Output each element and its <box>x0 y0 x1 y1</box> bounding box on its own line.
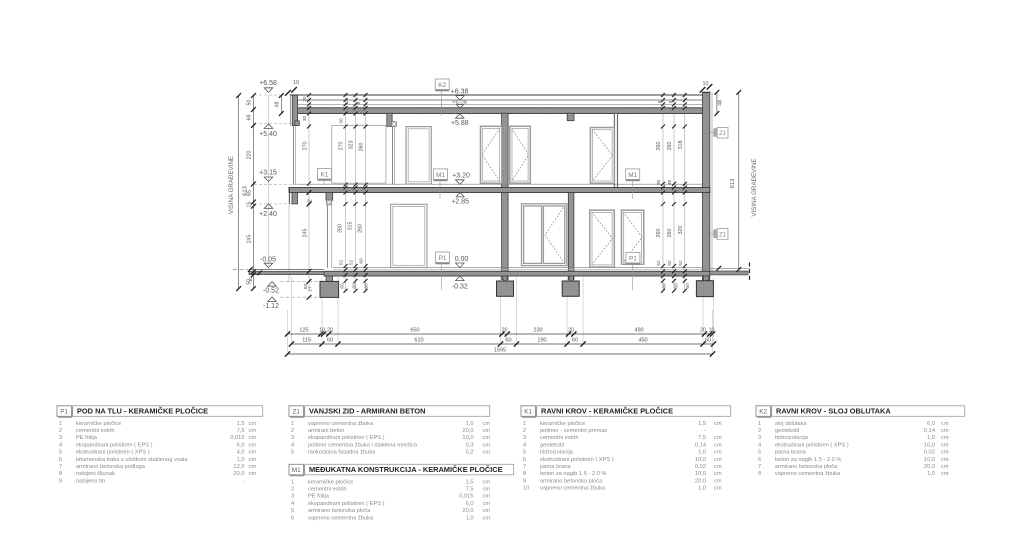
svg-text:323: 323 <box>349 141 355 150</box>
svg-text:-: - <box>243 478 245 484</box>
svg-text:5: 5 <box>758 450 761 456</box>
svg-text:1: 1 <box>523 421 526 427</box>
svg-text:cementni estrih: cementni estrih <box>308 487 347 493</box>
svg-text:ekspandirani polistiren ( EPS: ekspandirani polistiren ( EPS ) <box>308 501 385 507</box>
svg-text:RAVNI KROV - KERAMIČKE PLOČICE: RAVNI KROV - KERAMIČKE PLOČICE <box>541 407 673 416</box>
svg-text:Z1: Z1 <box>719 232 727 238</box>
svg-text:7: 7 <box>758 464 761 470</box>
svg-text:cm: cm <box>714 464 722 470</box>
svg-text:35: 35 <box>656 180 662 186</box>
svg-text:VISINA GRAĐEVINE: VISINA GRAĐEVINE <box>751 158 758 216</box>
svg-text:1,0: 1,0 <box>698 450 706 456</box>
svg-text:VANJSKI ZID - ARMIRANI BETON: VANJSKI ZID - ARMIRANI BETON <box>309 407 425 416</box>
svg-text:52: 52 <box>667 260 673 266</box>
svg-text:-: - <box>704 428 706 434</box>
svg-text:7: 7 <box>523 464 526 470</box>
svg-text:260: 260 <box>338 224 344 233</box>
svg-text:keramičke pločice: keramičke pločice <box>76 421 121 427</box>
svg-text:cm: cm <box>941 435 949 441</box>
svg-text:1: 1 <box>291 421 294 427</box>
svg-text:1: 1 <box>59 421 62 427</box>
svg-text:65: 65 <box>247 190 253 196</box>
svg-text:cm: cm <box>249 442 257 448</box>
svg-text:Z1: Z1 <box>292 409 300 416</box>
svg-text:52: 52 <box>656 260 662 266</box>
svg-text:1,0: 1,0 <box>466 515 474 521</box>
svg-text:2: 2 <box>523 428 526 434</box>
svg-text:cm: cm <box>249 428 257 434</box>
svg-text:armirano betonska ploča: armirano betonska ploča <box>540 478 603 484</box>
svg-text:+6.58: +6.58 <box>259 80 277 87</box>
svg-text:0,02: 0,02 <box>924 450 935 456</box>
svg-text:hidroizolacija: hidroizolacija <box>775 435 809 441</box>
svg-text:geotekstil: geotekstil <box>775 428 799 434</box>
svg-text:10: 10 <box>709 327 715 333</box>
svg-text:4,0: 4,0 <box>237 450 245 456</box>
svg-text:Z1: Z1 <box>719 131 727 137</box>
svg-text:260: 260 <box>667 142 673 151</box>
svg-text:5: 5 <box>59 450 62 456</box>
svg-text:650: 650 <box>410 327 419 333</box>
svg-text:K2: K2 <box>438 82 446 89</box>
svg-text:cm: cm <box>941 442 949 448</box>
svg-text:cm: cm <box>249 421 257 427</box>
svg-text:5: 5 <box>291 508 294 514</box>
svg-text:60: 60 <box>572 337 578 343</box>
svg-text:keramičke pločice: keramičke pločice <box>308 479 353 485</box>
svg-text:cm: cm <box>714 450 722 456</box>
svg-text:0,02: 0,02 <box>695 464 706 470</box>
svg-text:0,14: 0,14 <box>924 428 935 434</box>
svg-text:60: 60 <box>705 337 711 343</box>
svg-text:7,5: 7,5 <box>698 435 706 441</box>
svg-text:VISINA GRAĐEVINE: VISINA GRAĐEVINE <box>228 156 235 214</box>
svg-text:15: 15 <box>247 202 253 208</box>
svg-text:6: 6 <box>523 457 526 463</box>
svg-text:60: 60 <box>359 258 365 264</box>
svg-text:4: 4 <box>291 442 294 448</box>
svg-text:cm: cm <box>714 442 722 448</box>
svg-text:6: 6 <box>758 457 761 463</box>
svg-text:3: 3 <box>59 435 62 441</box>
svg-text:60: 60 <box>327 337 333 343</box>
svg-text:tankoslojna fasadna žbuka: tankoslojna fasadna žbuka <box>308 450 376 456</box>
svg-text:geotekstil: geotekstil <box>540 442 564 448</box>
svg-text:ekstrudirani polistiren ( XPS: ekstrudirani polistiren ( XPS ) <box>775 442 849 448</box>
svg-text:0,015: 0,015 <box>230 435 244 441</box>
svg-text:0.00: 0.00 <box>455 256 469 263</box>
svg-text:60: 60 <box>340 283 346 289</box>
svg-text:9: 9 <box>523 478 526 484</box>
svg-text:cm: cm <box>483 442 491 448</box>
svg-text:K1: K1 <box>321 171 329 178</box>
svg-text:52: 52 <box>349 260 355 266</box>
svg-text:60: 60 <box>685 283 691 289</box>
svg-text:cm: cm <box>249 450 257 456</box>
svg-text:vapneno cementna žbuka: vapneno cementna žbuka <box>540 486 606 492</box>
svg-text:1,5: 1,5 <box>237 421 245 427</box>
svg-text:cm: cm <box>714 421 722 427</box>
svg-text:cm: cm <box>249 471 257 477</box>
svg-text:cm: cm <box>714 486 722 492</box>
svg-text:vapneno cementna žbuka: vapneno cementna žbuka <box>308 421 374 427</box>
svg-text:cm: cm <box>483 501 491 507</box>
svg-text:hidroizolacija: hidroizolacija <box>540 450 574 456</box>
svg-text:1,0: 1,0 <box>698 486 706 492</box>
svg-text:cm: cm <box>941 457 949 463</box>
svg-text:nabijeni šljunak: nabijeni šljunak <box>76 471 115 477</box>
svg-text:ekspandirani polistiren ( EPS: ekspandirani polistiren ( EPS ) <box>308 435 385 441</box>
svg-text:315: 315 <box>348 222 354 231</box>
svg-text:armirano betonska ploča: armirano betonska ploča <box>308 508 371 514</box>
svg-text:48: 48 <box>718 100 724 106</box>
svg-text:bitumenska traka s uloškom sta: bitumenska traka s uloškom staklenog voa… <box>76 457 188 463</box>
svg-text:260: 260 <box>359 143 365 152</box>
svg-text:cm: cm <box>483 508 491 514</box>
svg-text:27: 27 <box>308 286 313 292</box>
svg-text:20: 20 <box>302 96 307 101</box>
svg-text:10,0: 10,0 <box>695 471 706 477</box>
svg-text:60: 60 <box>352 283 358 289</box>
svg-text:30: 30 <box>339 118 344 124</box>
svg-text:armirano betonska ploča: armirano betonska ploča <box>775 464 838 470</box>
svg-text:2: 2 <box>758 428 761 434</box>
svg-text:115: 115 <box>302 337 311 343</box>
svg-text:cm: cm <box>483 435 491 441</box>
svg-text:MEĐUKATNA KONSTRUKCIJA - KERAM: MEĐUKATNA KONSTRUKCIJA - KERAMIČKE PLOČI… <box>309 465 503 474</box>
svg-text:20,0: 20,0 <box>233 471 244 477</box>
svg-text:cm: cm <box>483 487 491 493</box>
svg-text:1,0: 1,0 <box>927 435 935 441</box>
svg-text:6,0: 6,0 <box>927 421 935 427</box>
svg-text:30: 30 <box>302 116 307 121</box>
svg-text:beton za nagib 1.5 - 2.0 %: beton za nagib 1.5 - 2.0 % <box>540 471 606 477</box>
svg-text:7,5: 7,5 <box>237 428 245 434</box>
svg-text:20: 20 <box>700 327 706 333</box>
svg-text:8: 8 <box>523 471 526 477</box>
svg-text:3: 3 <box>291 494 294 500</box>
svg-text:4: 4 <box>523 442 526 448</box>
svg-text:PE folija: PE folija <box>308 494 330 500</box>
svg-text:1: 1 <box>291 479 294 485</box>
svg-text:260: 260 <box>667 229 673 238</box>
svg-text:4: 4 <box>291 501 294 507</box>
svg-text:cementni estrih: cementni estrih <box>540 435 579 441</box>
svg-text:4: 4 <box>59 442 62 448</box>
svg-text:cementni estrih: cementni estrih <box>76 428 115 434</box>
svg-text:260: 260 <box>358 224 364 233</box>
svg-text:-0.52: -0.52 <box>263 287 279 294</box>
svg-text:230: 230 <box>533 327 542 333</box>
svg-text:cm: cm <box>483 450 491 456</box>
svg-text:K2: K2 <box>759 409 767 416</box>
svg-text:M1: M1 <box>292 467 301 474</box>
svg-text:2: 2 <box>59 428 62 434</box>
svg-text:cm: cm <box>714 478 722 484</box>
svg-text:245: 245 <box>247 235 253 244</box>
svg-text:35: 35 <box>667 180 673 186</box>
svg-text:cm: cm <box>941 428 949 434</box>
svg-text:cm: cm <box>941 464 949 470</box>
svg-text:K1: K1 <box>524 409 532 416</box>
svg-text:+2.85: +2.85 <box>451 199 469 206</box>
svg-text:5: 5 <box>291 450 294 456</box>
svg-text:+5.88: +5.88 <box>451 120 469 127</box>
svg-text:9: 9 <box>59 478 62 484</box>
svg-text:260: 260 <box>656 229 662 238</box>
svg-text:6: 6 <box>291 515 294 521</box>
svg-text:613: 613 <box>730 179 736 189</box>
svg-text:RAVNI KROV - SLOJ OBLUTAKA: RAVNI KROV - SLOJ OBLUTAKA <box>776 407 891 416</box>
svg-text:6,0: 6,0 <box>237 442 245 448</box>
svg-text:cm: cm <box>714 435 722 441</box>
svg-text:+6.38: +6.38 <box>451 89 469 96</box>
svg-text:10,0: 10,0 <box>695 457 706 463</box>
svg-text:270: 270 <box>302 142 308 151</box>
svg-text:52: 52 <box>678 260 684 266</box>
svg-text:cm: cm <box>941 450 949 456</box>
svg-text:+5.40: +5.40 <box>259 131 277 138</box>
svg-text:P1: P1 <box>60 409 68 416</box>
svg-text:10,0: 10,0 <box>462 435 473 441</box>
svg-text:20: 20 <box>327 327 333 333</box>
svg-text:3: 3 <box>758 435 761 441</box>
svg-text:M1: M1 <box>628 172 637 179</box>
svg-text:nabijeno tlo: nabijeno tlo <box>76 478 105 484</box>
svg-text:220: 220 <box>247 151 253 160</box>
svg-text:1,0: 1,0 <box>237 457 245 463</box>
svg-text:cm: cm <box>483 479 491 485</box>
svg-text:50: 50 <box>247 100 253 106</box>
svg-text:0,2: 0,2 <box>466 450 474 456</box>
svg-text:60: 60 <box>505 337 511 343</box>
svg-text:cm: cm <box>249 457 257 463</box>
svg-text:-0.05: -0.05 <box>260 257 276 264</box>
svg-text:13: 13 <box>344 99 349 104</box>
svg-text:0,14: 0,14 <box>695 442 706 448</box>
svg-text:60: 60 <box>364 283 370 289</box>
svg-text:cm: cm <box>249 435 257 441</box>
svg-text:10,0: 10,0 <box>924 457 935 463</box>
svg-text:P1: P1 <box>439 255 447 262</box>
svg-text:cm: cm <box>941 471 949 477</box>
svg-text:20,0: 20,0 <box>924 464 935 470</box>
svg-text:490: 490 <box>634 327 643 333</box>
svg-text:245: 245 <box>302 229 308 238</box>
svg-text:10: 10 <box>319 327 325 333</box>
svg-text:parna brana: parna brana <box>775 450 807 456</box>
svg-text:5: 5 <box>523 450 526 456</box>
svg-text:4: 4 <box>758 442 761 448</box>
svg-text:PE folija: PE folija <box>76 435 98 441</box>
svg-text:cm: cm <box>249 464 257 470</box>
svg-text:+6.06: +6.06 <box>452 100 468 106</box>
svg-text:68: 68 <box>247 115 253 121</box>
svg-text:20,0: 20,0 <box>462 428 473 434</box>
svg-text:cm: cm <box>714 471 722 477</box>
svg-text:12,0: 12,0 <box>233 464 244 470</box>
svg-text:parna brana: parna brana <box>540 464 572 470</box>
svg-text:+3.20: +3.20 <box>452 172 470 179</box>
svg-text:POD NA TLU - KERAMIČKE PLOČICE: POD NA TLU - KERAMIČKE PLOČICE <box>77 407 208 416</box>
svg-text:270: 270 <box>339 142 345 151</box>
svg-text:10: 10 <box>293 80 299 86</box>
svg-text:10,0: 10,0 <box>924 442 935 448</box>
svg-text:1,5: 1,5 <box>698 421 706 427</box>
svg-text:0,015: 0,015 <box>459 494 473 500</box>
svg-text:48: 48 <box>275 102 281 108</box>
svg-text:sloj oblutaka: sloj oblutaka <box>775 421 807 427</box>
svg-text:beton za nagib 1.5 - 2.0 %: beton za nagib 1.5 - 2.0 % <box>775 457 841 463</box>
svg-text:7: 7 <box>59 464 62 470</box>
svg-text:1595: 1595 <box>494 347 506 353</box>
svg-text:3: 3 <box>523 435 526 441</box>
svg-text:450: 450 <box>638 337 647 343</box>
svg-text:1,0: 1,0 <box>466 421 474 427</box>
svg-text:20,0: 20,0 <box>462 508 473 514</box>
svg-text:+2.40: +2.40 <box>259 211 277 218</box>
svg-text:vapneno cementna žbuka: vapneno cementna žbuka <box>775 471 841 477</box>
svg-text:20: 20 <box>568 327 574 333</box>
svg-text:3: 3 <box>291 435 294 441</box>
svg-text:ekstrudirani polistiren ( XPS: ekstrudirani polistiren ( XPS ) <box>76 450 150 456</box>
svg-text:8: 8 <box>59 471 62 477</box>
svg-text:0,3: 0,3 <box>466 442 474 448</box>
svg-text:60: 60 <box>674 283 680 289</box>
svg-text:+3.15: +3.15 <box>259 170 277 177</box>
svg-text:610: 610 <box>414 337 423 343</box>
svg-text:20: 20 <box>502 327 508 333</box>
svg-text:ekspandirani polistiren ( EPS: ekspandirani polistiren ( EPS ) <box>76 442 153 448</box>
svg-text:armirani beton: armirani beton <box>308 428 344 434</box>
svg-text:1,5: 1,5 <box>466 479 474 485</box>
svg-text:10: 10 <box>523 486 529 492</box>
svg-text:320: 320 <box>678 226 684 235</box>
svg-text:20,0: 20,0 <box>695 478 706 484</box>
svg-text:keramičke pločice: keramičke pločice <box>540 421 585 427</box>
svg-text:P1: P1 <box>629 255 637 262</box>
svg-text:polimer cementna žbuka i stakl: polimer cementna žbuka i staklena mrežic… <box>308 442 418 448</box>
svg-text:cm: cm <box>483 421 491 427</box>
svg-text:ekstrudirani polistiren ( XPS: ekstrudirani polistiren ( XPS ) <box>540 457 614 463</box>
svg-text:6: 6 <box>59 457 62 463</box>
svg-text:318: 318 <box>678 141 684 150</box>
svg-text:M1: M1 <box>436 172 445 179</box>
svg-text:vapneno cementna žbuka: vapneno cementna žbuka <box>308 515 374 521</box>
svg-text:50: 50 <box>247 279 253 285</box>
svg-text:-1.12: -1.12 <box>263 303 279 310</box>
svg-text:2: 2 <box>291 428 294 434</box>
svg-text:cm: cm <box>483 494 491 500</box>
svg-text:10: 10 <box>703 81 709 87</box>
svg-text:cm: cm <box>483 428 491 434</box>
svg-text:190: 190 <box>537 337 546 343</box>
svg-text:7,5: 7,5 <box>466 487 474 493</box>
svg-text:1,0: 1,0 <box>927 471 935 477</box>
svg-text:1: 1 <box>758 421 761 427</box>
svg-text:52: 52 <box>339 260 345 266</box>
svg-text:6,0: 6,0 <box>466 501 474 507</box>
svg-text:cm: cm <box>714 457 722 463</box>
svg-text:cm: cm <box>483 515 491 521</box>
svg-text:2: 2 <box>291 487 294 493</box>
svg-text:8: 8 <box>758 471 761 477</box>
svg-text:60: 60 <box>662 283 668 289</box>
svg-text:armirano betonska podloga: armirano betonska podloga <box>76 464 146 470</box>
svg-text:260: 260 <box>656 142 662 151</box>
svg-text:-0.32: -0.32 <box>452 283 468 290</box>
svg-text:125: 125 <box>299 327 308 333</box>
svg-text:polimer - cementni premaz: polimer - cementni premaz <box>540 428 607 434</box>
svg-text:cm: cm <box>941 421 949 427</box>
